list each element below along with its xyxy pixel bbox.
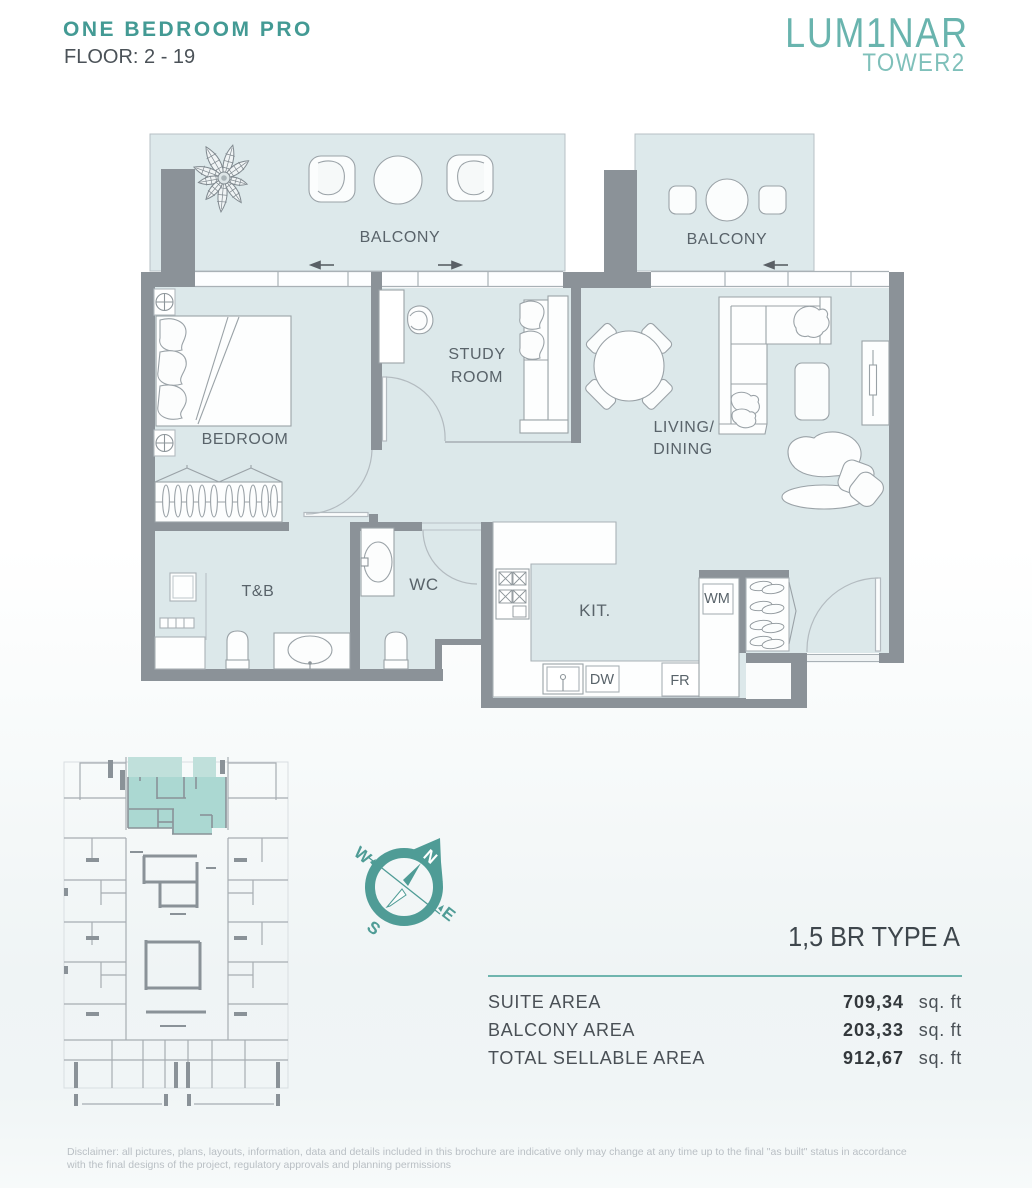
svg-text:DINING: DINING (653, 441, 713, 458)
svg-text:BALCONY: BALCONY (360, 229, 441, 246)
svg-text:BEDROOM: BEDROOM (202, 431, 289, 448)
svg-text:BALCONY: BALCONY (687, 231, 768, 248)
svg-text:ROOM: ROOM (451, 369, 503, 386)
svg-text:T&B: T&B (242, 583, 275, 600)
svg-text:KIT.: KIT. (579, 601, 611, 620)
svg-text:DW: DW (590, 672, 614, 688)
svg-text:WC: WC (409, 575, 439, 594)
svg-text:LIVING/: LIVING/ (653, 419, 714, 436)
svg-text:FR: FR (670, 673, 689, 689)
svg-text:W: W (350, 843, 375, 868)
svg-text:WM: WM (704, 591, 730, 607)
svg-text:S: S (363, 917, 384, 939)
svg-text:STUDY: STUDY (448, 346, 505, 363)
